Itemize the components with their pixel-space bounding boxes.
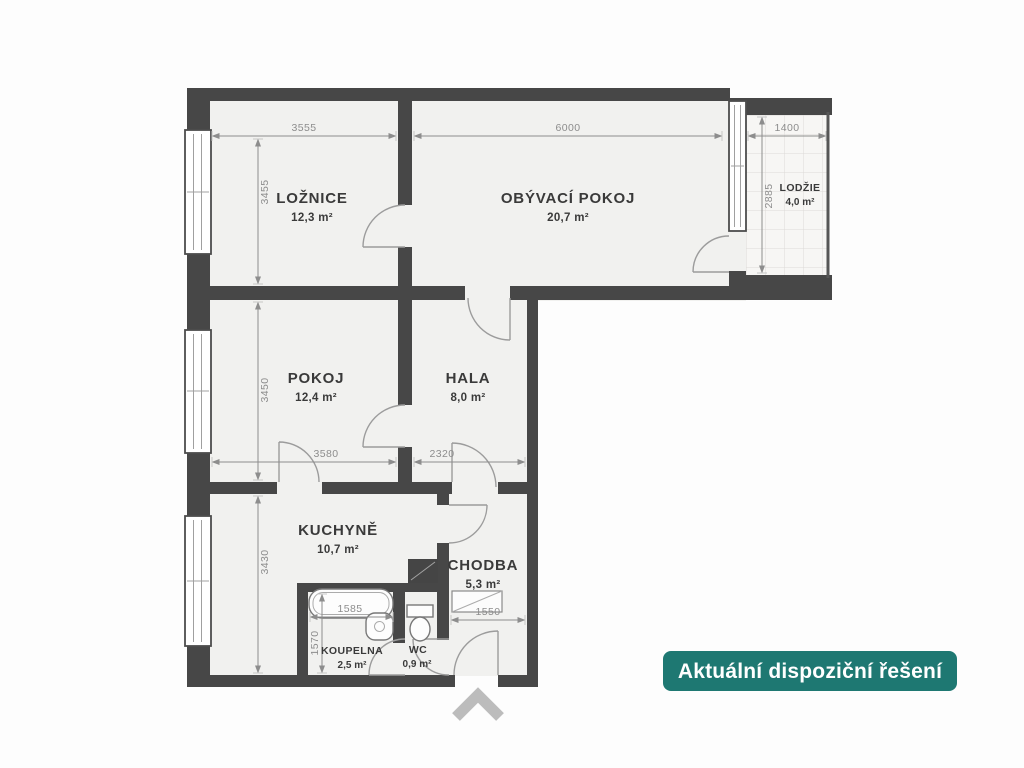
room-label-hala: HALA: [446, 370, 491, 387]
wall-segment: [729, 271, 746, 287]
room-label-obyvaci-pokoj: OBÝVACÍ POKOJ: [501, 189, 635, 207]
room-area-loznice: 12,3 m²: [291, 212, 333, 224]
dim-kuchyne-height: 3430: [259, 550, 271, 575]
dim-obyvaci-width: 6000: [556, 122, 581, 134]
floorplan-image: 3555 6000 1400 3455 2885 3450 3580 2320 …: [0, 0, 1024, 768]
room-label-wc: WC: [409, 644, 427, 656]
room-area-pokoj: 12,4 m²: [295, 392, 337, 404]
room-label-kuchyne: KUCHYNĚ: [298, 521, 378, 539]
toilet-bowl: [410, 617, 430, 641]
wall-segment: [398, 101, 412, 205]
wall-segment: [187, 675, 455, 687]
window-pokoj: [185, 330, 211, 453]
dim-koupelna-height: 1570: [309, 631, 321, 656]
status-badge: Aktuální dispoziční řešení: [663, 651, 957, 691]
room-area-hala: 8,0 m²: [450, 392, 485, 404]
room-area-chodba: 5,3 m²: [465, 579, 500, 591]
wall-segment: [398, 247, 412, 286]
room-area-obyvaci-pokoj: 20,7 m²: [547, 212, 589, 224]
window-loznice: [185, 130, 211, 254]
wall-segment: [398, 300, 412, 405]
dim-chodba-width: 1550: [476, 606, 501, 618]
dim-loznice-width: 3555: [292, 122, 317, 134]
toilet-tank: [407, 605, 433, 617]
window-kuchyne: [185, 516, 211, 646]
chevron-up-icon: [456, 695, 500, 717]
dim-pokoj-height: 3450: [259, 378, 271, 403]
wall-segment: [398, 447, 412, 482]
lodzie-tile-grid: [746, 115, 828, 275]
room-area-wc: 0,9 m²: [403, 659, 433, 670]
wall-segment: [187, 286, 465, 300]
room-label-lodzie: LODŽIE: [780, 181, 821, 194]
room-area-koupelna: 2,5 m²: [338, 660, 368, 671]
wall-segment: [322, 482, 452, 494]
dim-hala-width: 2320: [430, 448, 455, 460]
wall-segment: [437, 494, 449, 505]
wall-segment: [297, 583, 308, 675]
window-lodzie: [729, 101, 746, 231]
room-label-koupelna: KOUPELNA: [321, 645, 383, 657]
room-area-kuchyne: 10,7 m²: [317, 544, 359, 556]
wall-segment: [527, 286, 538, 687]
dim-loznice-height: 3455: [259, 180, 271, 205]
dim-lodzie-width: 1400: [775, 122, 800, 134]
badge-label: Aktuální dispoziční řešení: [678, 660, 943, 683]
wall-segment: [187, 482, 277, 494]
floorplan-canvas: 3555 6000 1400 3455 2885 3450 3580 2320 …: [0, 0, 1024, 768]
room-area-lodzie: 4,0 m²: [786, 197, 816, 208]
wall-segment: [510, 286, 730, 300]
dim-lodzie-height: 2885: [763, 184, 775, 209]
room-label-chodba: CHODBA: [448, 557, 519, 574]
wall-segment: [498, 482, 527, 494]
wall-segment: [393, 592, 405, 643]
wall-segment: [498, 675, 538, 687]
room-label-loznice: LOŽNICE: [276, 189, 347, 207]
room-label-pokoj: POKOJ: [288, 370, 345, 387]
dim-pokoj-width: 3580: [314, 448, 339, 460]
wall-segment: [187, 88, 730, 101]
dim-koupelna-width: 1585: [338, 603, 363, 615]
